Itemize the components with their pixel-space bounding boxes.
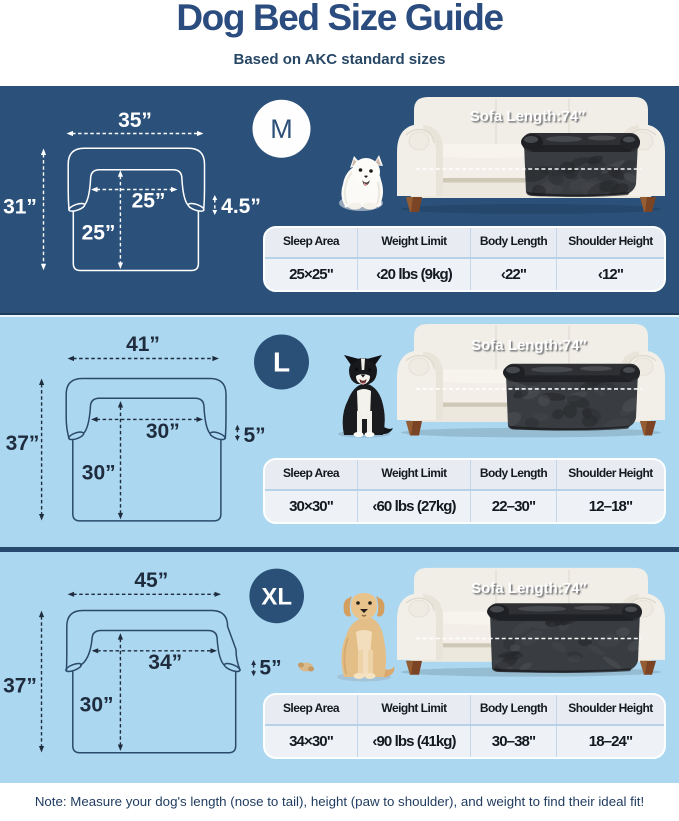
svg-text:37”: 37”: [6, 432, 40, 455]
svg-text:Sofa Length:74″: Sofa Length:74″: [471, 580, 587, 597]
svg-text:41”: 41”: [126, 333, 160, 356]
svg-text:30”: 30”: [80, 694, 114, 717]
svg-text:5”: 5”: [259, 656, 281, 679]
svg-text:35”: 35”: [118, 109, 152, 132]
svg-text:34”: 34”: [148, 651, 182, 674]
svg-text:M: M: [270, 114, 293, 144]
svg-text:Sofa Length:74″: Sofa Length:74″: [471, 337, 587, 354]
svg-text:25”: 25”: [132, 190, 166, 213]
svg-text:XL: XL: [261, 584, 292, 611]
svg-text:30”: 30”: [82, 462, 116, 485]
svg-text:31”: 31”: [3, 196, 37, 219]
svg-text:5”: 5”: [244, 424, 266, 447]
svg-text:37”: 37”: [3, 675, 37, 698]
svg-text:30”: 30”: [146, 420, 180, 443]
svg-text:L: L: [273, 347, 290, 378]
svg-text:Sofa Length:74″: Sofa Length:74″: [470, 108, 586, 125]
svg-text:25”: 25”: [82, 222, 116, 245]
svg-text:4.5”: 4.5”: [221, 195, 261, 218]
svg-text:45”: 45”: [134, 569, 168, 592]
